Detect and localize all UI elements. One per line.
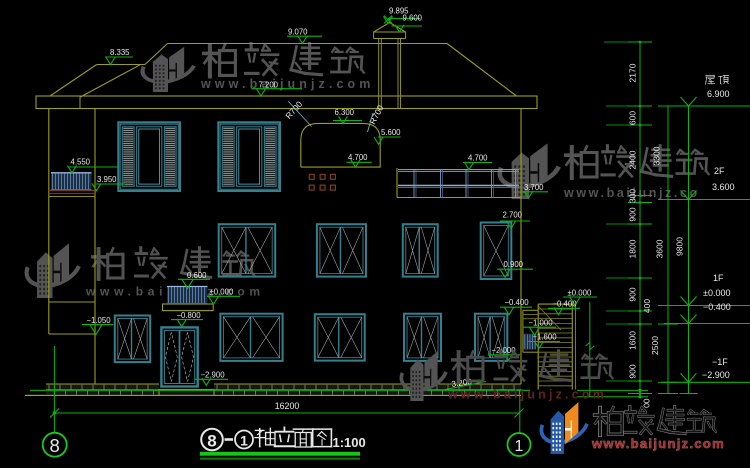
svg-text:www.baijunjz.com: www.baijunjz.com [591,436,725,451]
svg-text:1F: 1F [713,273,724,283]
svg-text:8: 8 [50,435,60,456]
svg-text:2500: 2500 [650,336,660,355]
svg-text:±0.000: ±0.000 [210,287,234,296]
svg-text:±0.000: ±0.000 [568,288,592,297]
svg-text:2170: 2170 [628,63,638,82]
svg-text:±0.000: ±0.000 [703,288,730,298]
svg-text:2F: 2F [714,166,725,176]
svg-text:300: 300 [628,189,638,203]
svg-text:2.700: 2.700 [503,211,523,220]
svg-text:9800: 9800 [675,237,685,256]
svg-text:8: 8 [207,432,216,451]
svg-text:6.900: 6.900 [707,89,730,99]
svg-text:4.700: 4.700 [348,153,368,162]
svg-text:3.600: 3.600 [712,182,735,192]
svg-text:1600: 1600 [628,331,638,350]
svg-text:600: 600 [628,111,638,125]
svg-text:3.700: 3.700 [524,183,544,192]
svg-text:−1.050: −1.050 [87,316,112,325]
svg-text:1800: 1800 [628,239,638,258]
svg-text:4.550: 4.550 [71,157,91,166]
svg-text:3.950: 3.950 [97,175,117,184]
svg-text:900: 900 [628,364,638,378]
svg-text:900: 900 [628,287,638,301]
svg-text:−0.800: −0.800 [177,311,202,320]
svg-text:−1.000: −1.000 [529,318,554,327]
svg-text:−0.400: −0.400 [703,302,731,312]
svg-text:16200: 16200 [275,401,300,411]
svg-text:8.335: 8.335 [110,48,130,57]
svg-text:9.070: 9.070 [288,28,308,37]
svg-text:6.300: 6.300 [335,108,355,117]
svg-text:−1.600: −1.600 [533,333,558,342]
svg-text:1: 1 [240,433,248,449]
svg-text:400: 400 [642,299,652,313]
svg-text:900: 900 [628,207,638,221]
svg-text:−2.900: −2.900 [201,371,226,380]
svg-text:−0.400: −0.400 [553,300,578,309]
svg-text:3300: 3300 [652,146,662,165]
svg-text:7.200: 7.200 [259,80,279,89]
svg-text:1: 1 [515,438,524,455]
svg-text:4.700: 4.700 [468,153,488,162]
svg-text:www.baijunjz.com: www.baijunjz.com [447,388,607,402]
svg-text:−2.900: −2.900 [702,370,730,380]
svg-text:−0.400: −0.400 [505,298,530,307]
svg-text:0.600: 0.600 [187,271,207,280]
svg-text:5.600: 5.600 [381,128,401,137]
svg-text:−1F: −1F [712,357,728,367]
svg-text:3600: 3600 [655,239,665,258]
svg-text:0.900: 0.900 [504,260,524,269]
svg-text:1:100: 1:100 [333,435,366,450]
svg-text:9.600: 9.600 [403,14,423,23]
svg-text:2400: 2400 [628,150,638,169]
